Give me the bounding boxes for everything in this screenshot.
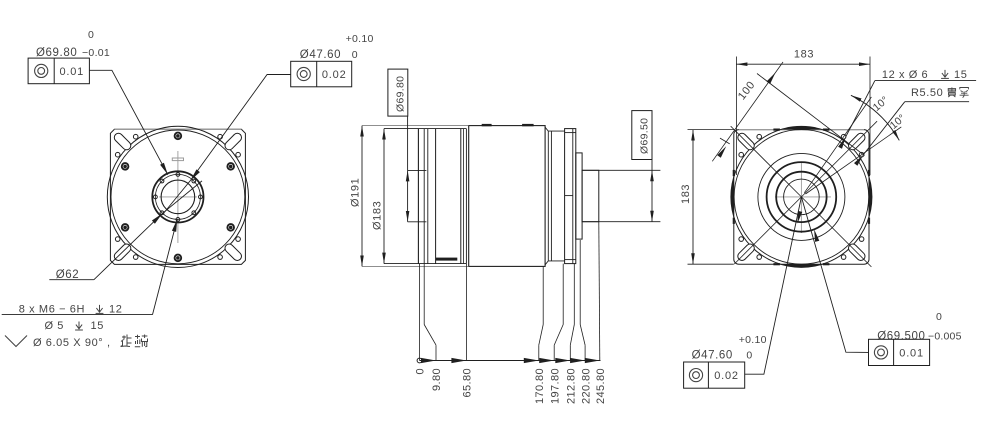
svg-text:Ø 5: Ø 5 <box>45 320 65 332</box>
svg-text:212.80: 212.80 <box>566 368 578 404</box>
svg-text:Ø183: Ø183 <box>372 201 384 230</box>
svg-text:0: 0 <box>936 311 942 323</box>
svg-text:Ø69.50: Ø69.50 <box>639 118 651 154</box>
svg-text:245.80: 245.80 <box>595 368 607 404</box>
svg-text:−0.005: −0.005 <box>928 330 962 342</box>
svg-text:12 x Ø 6: 12 x Ø 6 <box>882 69 928 81</box>
svg-text:Ø 6.05 X 90° ,: Ø 6.05 X 90° , <box>33 337 111 349</box>
svg-text:65.80: 65.80 <box>462 368 474 398</box>
svg-text:Ø69.80: Ø69.80 <box>395 76 407 112</box>
svg-text:Ø47.60: Ø47.60 <box>300 49 341 61</box>
svg-text:197.80: 197.80 <box>549 368 561 404</box>
svg-text:Ø191: Ø191 <box>350 178 362 207</box>
svg-text:8 x M6 − 6H: 8 x M6 − 6H <box>19 304 85 316</box>
svg-text:0: 0 <box>352 49 358 61</box>
svg-text:0.02: 0.02 <box>714 370 739 382</box>
svg-text:0.01: 0.01 <box>899 347 924 359</box>
svg-text:+0.10: +0.10 <box>739 334 767 346</box>
svg-text:12: 12 <box>109 304 122 316</box>
svg-text:R5.50: R5.50 <box>911 87 943 99</box>
svg-text:Ø69.500: Ø69.500 <box>877 330 925 342</box>
svg-text:0.02: 0.02 <box>322 69 347 81</box>
svg-text:Ø47.60: Ø47.60 <box>692 350 733 362</box>
svg-text:9.80: 9.80 <box>431 368 443 391</box>
svg-text:170.80: 170.80 <box>534 368 546 404</box>
svg-text:Ø69.80: Ø69.80 <box>36 47 77 59</box>
svg-text:0: 0 <box>746 350 752 362</box>
svg-text:−0.01: −0.01 <box>82 47 110 59</box>
svg-text:0: 0 <box>88 29 94 41</box>
svg-text:220.80: 220.80 <box>580 368 592 404</box>
svg-text:0.01: 0.01 <box>59 66 84 78</box>
svg-text:0: 0 <box>415 368 427 375</box>
svg-text:+0.10: +0.10 <box>346 33 374 45</box>
svg-text:15: 15 <box>954 69 967 81</box>
svg-text:183: 183 <box>794 49 814 61</box>
svg-text:15: 15 <box>91 320 104 332</box>
svg-text:183: 183 <box>680 184 692 204</box>
